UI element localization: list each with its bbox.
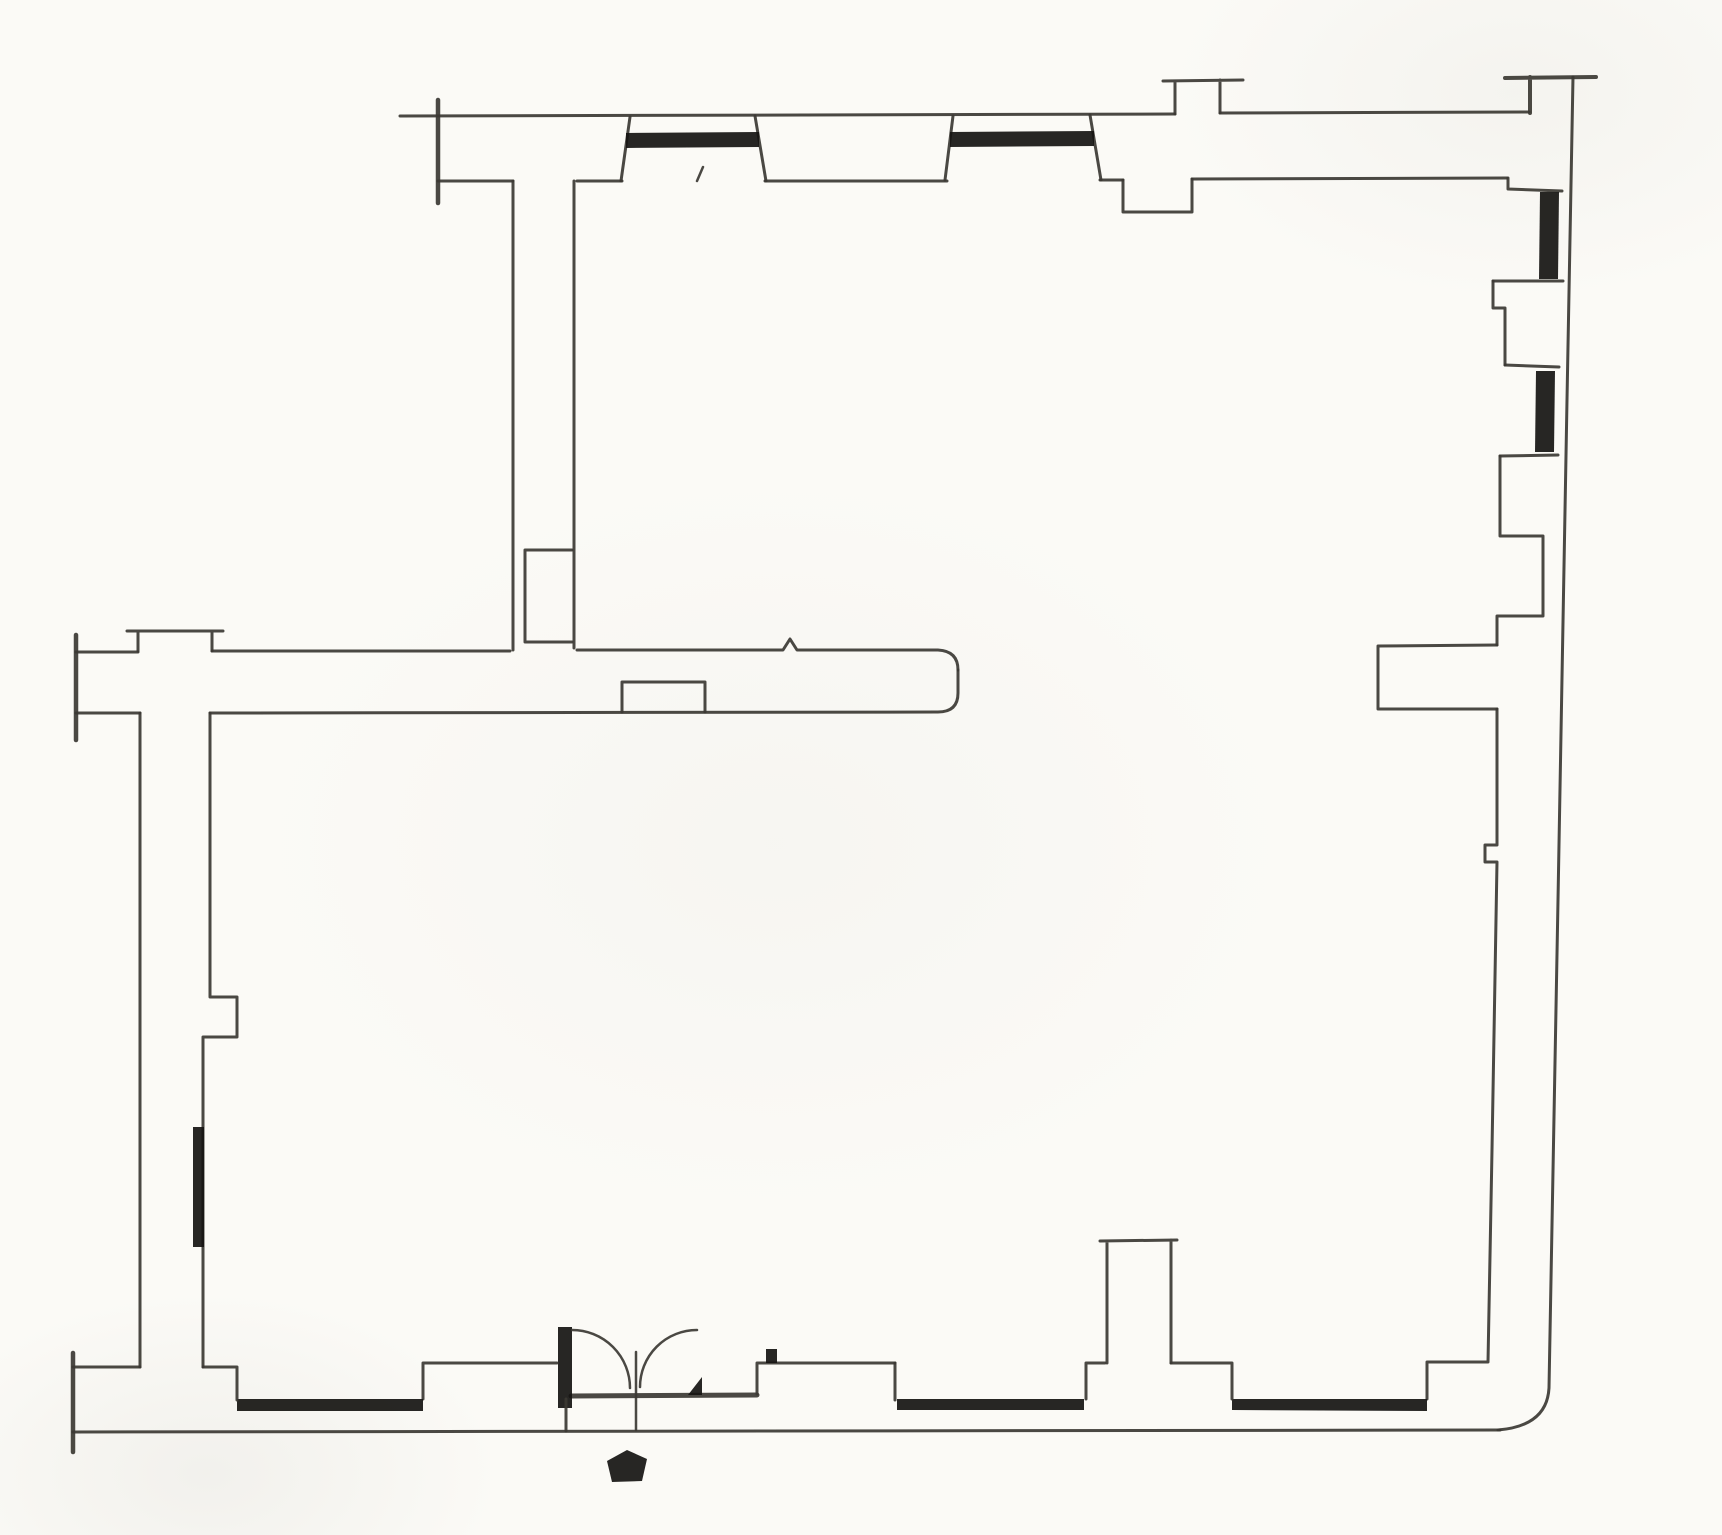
entry-pentagon-marker: [607, 1450, 647, 1482]
entry-door-left-jamb: [558, 1327, 572, 1408]
window-east-c-glazing-bar: [1539, 192, 1559, 279]
floor-plan-svg: [0, 0, 1722, 1535]
oven-pier: [1100, 1240, 1177, 1363]
north-wall-niche: [1123, 179, 1192, 212]
window-north-b-left-jamb: [945, 116, 953, 180]
top-wall-outer-line: [400, 112, 1529, 116]
window-east-c-head: [1508, 178, 1562, 191]
northeast-corner-cap: [1505, 77, 1596, 113]
window-north-b-glazing-bar: [950, 131, 1094, 147]
window-south-g-glazing-bar: [1232, 1399, 1427, 1411]
north-door-tick: [697, 167, 703, 181]
window-north-b-right-jamb: [1090, 115, 1101, 180]
partition-wall-niche: [525, 550, 572, 642]
east-partition-stub: [1378, 645, 1497, 709]
entry-door-threshold: [571, 1395, 757, 1396]
entry-door-right-leaf-foot: [688, 1377, 702, 1395]
entry-door-left-leaf-arc: [572, 1330, 630, 1388]
window-north-a-left-jamb: [621, 117, 630, 181]
east-wall-inner-line-mid: [1497, 456, 1543, 645]
west-wall-inner-line: [203, 713, 237, 1367]
south-wall-inner-door-right: [757, 1363, 895, 1394]
east-wall-niche-upper: [1493, 281, 1505, 365]
entry-door-right-leaf-arc: [640, 1330, 697, 1387]
middle-wall-niche: [622, 682, 705, 712]
north-chimney-breast: [1163, 80, 1243, 114]
top-wall-inner-line: [438, 178, 1507, 181]
window-north-a-glazing-bar: [626, 132, 759, 148]
window-east-d-sill: [1500, 455, 1558, 456]
south-wall-inner-left: [203, 1367, 237, 1400]
middle-wall-top-line: [76, 639, 958, 670]
floor-plan-scan: [0, 0, 1722, 1535]
south-wall-inner-right: [1171, 1363, 1232, 1399]
south-wall-inner-mid: [1086, 1363, 1105, 1399]
window-east-d-glazing-bar: [1535, 371, 1555, 452]
east-wall-inner-line-lower: [1427, 709, 1497, 1399]
window-east-d-head: [1505, 365, 1559, 367]
west-wall-door-bar: [193, 1127, 204, 1247]
window-south-f-glazing-bar: [897, 1399, 1084, 1410]
entry-marker-tick: [766, 1349, 777, 1363]
west-chimney-breast: [127, 631, 223, 651]
south-wall-inner-e-right: [423, 1363, 557, 1399]
window-north-a-right-jamb: [755, 116, 766, 181]
bottom-wall-outer-line: [73, 1430, 1500, 1432]
middle-wall-end-and-bottom-line: [210, 670, 958, 713]
window-south-e-glazing-bar: [237, 1399, 423, 1411]
